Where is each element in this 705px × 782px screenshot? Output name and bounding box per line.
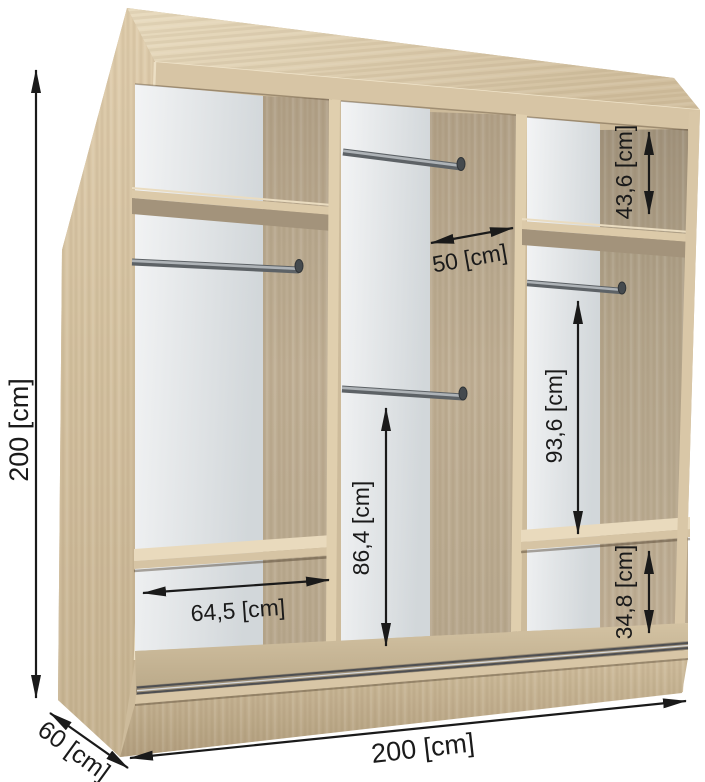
divider-2-grain	[430, 112, 517, 636]
rod-end-bracket	[618, 282, 626, 294]
dim-right-hanging-label: 93,6 [cm]	[541, 369, 567, 464]
divider-1-grain	[263, 96, 330, 645]
dim-right-top-label: 43,6 [cm]	[611, 125, 637, 220]
dim-middle-hanging-label: 86,4 [cm]	[348, 481, 374, 576]
dim-right-bottom-label: 34,8 [cm]	[611, 545, 637, 640]
rod-end-bracket	[459, 387, 467, 400]
wardrobe-diagram: 200 [cm] 200 [cm] 60 [cm] 43,6 [cm] 50 […	[0, 0, 705, 782]
dim-overall-height-label: 200 [cm]	[4, 378, 34, 482]
wardrobe-illustration	[58, 8, 700, 757]
rod-end-bracket	[457, 158, 465, 171]
diagram-canvas: 200 [cm] 200 [cm] 60 [cm] 43,6 [cm] 50 […	[0, 0, 705, 782]
left-compartment	[132, 84, 332, 651]
rod-end-bracket	[295, 260, 303, 273]
